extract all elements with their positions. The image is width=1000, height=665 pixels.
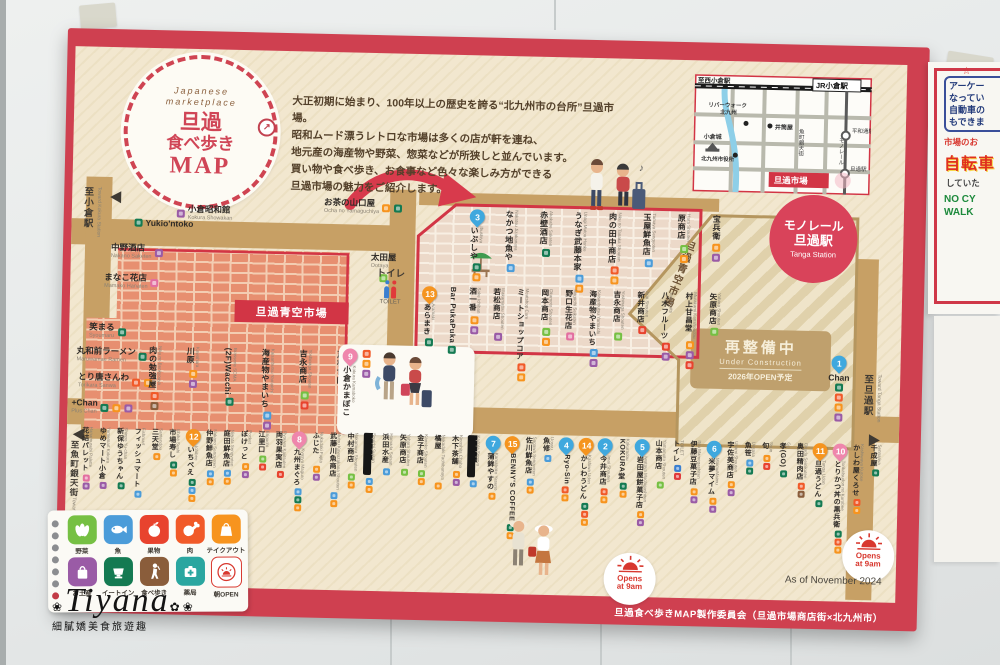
direction-kokura: 至小倉駅 Toward Kokura Station — [79, 186, 121, 237]
shop-item: 武藤川魚商店 Mutou Kawazakana Shouten — [327, 432, 342, 508]
opens-line2: at 9am — [617, 583, 643, 592]
fish-icon — [330, 492, 337, 499]
shop-romaji: Murakami Kanshoudou — [692, 292, 698, 338]
shop-icons — [580, 502, 589, 526]
fish-icon — [224, 470, 231, 477]
legend-label: テイクアウト — [206, 544, 245, 554]
shop-item: +Chan Plus Chan — [71, 398, 134, 417]
fruit-icon — [686, 361, 694, 369]
shop-item: 12 いちべえ Ichibee — [184, 429, 201, 502]
takeout-icon — [348, 482, 355, 489]
shop-item: 10 とりかつ丼の黒兵衛 Torikatsudon no Kurobee — [830, 443, 848, 554]
legend-icon — [175, 557, 204, 586]
meat-icon — [601, 488, 608, 495]
fruit-icon — [638, 326, 646, 334]
shop-icons — [446, 345, 456, 355]
shop-romaji: Usami Shouten — [733, 441, 739, 479]
mid-shop-row: 肉の勉強屋 Niku no Benkyouya 川原 Kawahara — [147, 346, 351, 432]
shop-item: 3 いぶしや Ibushiya — [468, 209, 485, 282]
shop-romaji: MaimuMaimu — [714, 458, 720, 496]
shop-icons — [300, 390, 310, 410]
shop-romaji: Hara Shouten — [686, 214, 692, 242]
shop-romaji: Souichi Suisan — [371, 433, 377, 475]
legend-item: テイクアウト — [210, 514, 242, 554]
takeout-icon — [691, 488, 698, 495]
shop-icons — [206, 470, 214, 486]
construction-open-date: 2026年OPEN予定 — [728, 371, 793, 383]
shop-romaji: Kaisanbutsu Yamaichi — [269, 349, 275, 409]
shop-romaji: Yagi Fruits — [668, 292, 674, 340]
shop-romaji: Nukadaki Fujita — [319, 432, 325, 463]
flower-icon — [566, 332, 574, 340]
shop-icons — [149, 390, 159, 410]
shop-romaji: Kokuradou — [625, 439, 631, 480]
legend-item: 野菜 — [66, 515, 98, 555]
shop-romaji: Yahara Shouten — [716, 293, 722, 325]
legend-icon — [103, 515, 132, 544]
shop-item: 9 小倉かまぼこ Kokura Kamaboko — [341, 348, 358, 430]
vegetable-icon — [656, 481, 663, 488]
shop-icons — [276, 470, 284, 478]
shop-icons — [488, 492, 496, 500]
meat-icon — [834, 539, 841, 546]
takeout-icon — [170, 469, 177, 476]
shop-romaji: Kokura Showakan — [188, 214, 233, 224]
legend-label: 魚 — [115, 545, 122, 555]
construction-title: 再整備中 — [725, 336, 797, 359]
shop-item: 金子商店 Kaneko Shouten — [415, 434, 429, 486]
takeout-icon — [113, 404, 121, 412]
shop-item: KOKURA堂 Kokuradou — [616, 439, 630, 499]
shop-romaji: Kokura Kamaboko — [351, 366, 357, 417]
meat-icon — [363, 350, 371, 358]
map-canvas: 旦過青空市場 旦過青空市場 再整備中 Under Construction 20… — [63, 46, 907, 603]
shop-icons — [506, 523, 514, 539]
takeout-icon — [153, 453, 160, 460]
shop-item: 8 九州まぐろ Kyusyu Maguro — [290, 431, 307, 512]
shop-icons — [469, 479, 477, 487]
shop-icons — [225, 397, 235, 407]
eatin-icon — [294, 496, 301, 503]
toilet-marker: トイレ TOILET — [376, 265, 405, 306]
toilet-label-jp: トイレ — [376, 265, 405, 280]
flower-icon — [83, 474, 90, 481]
numbered-pin: 2 — [595, 435, 616, 456]
fruit-icon — [301, 401, 309, 409]
souvenir-icon — [637, 519, 644, 526]
tape — [79, 2, 117, 29]
direction-kokura-label: 至小倉駅 — [79, 186, 94, 237]
souvenir-icon — [728, 489, 735, 496]
shop-item: 吉永商店 Yoshinaga Shouten — [611, 290, 626, 341]
shop-item: 岡本商店 Okamoto Shouten — [539, 289, 554, 348]
eatin-icon — [746, 467, 753, 474]
shop-icons — [661, 342, 671, 362]
station-line1: モノレール — [784, 218, 844, 233]
shop-item: 江里口 Eriguchi — [256, 430, 270, 471]
shop-romaji: Kadota Sengyo — [475, 435, 481, 477]
shop-icons — [241, 462, 249, 478]
meat-icon — [517, 363, 525, 371]
flower-icon — [151, 279, 159, 287]
takeout-icon — [313, 465, 320, 472]
shop-item: お茶の山口屋 Ocha no Yamaguchiya — [324, 198, 404, 218]
takeout-icon — [853, 507, 860, 514]
eatin-icon — [188, 478, 195, 485]
takeout-icon — [763, 455, 770, 462]
shop-item: 橘屋 Nukadaki Tachibanaya — [432, 434, 446, 489]
shop-romaji: Kinoshita Chaho — [458, 435, 464, 468]
shop-name: Chan — [828, 372, 849, 382]
takeout-icon — [418, 478, 425, 485]
shop-item: 野口生花店 Noguchi Seikaten — [563, 289, 578, 341]
legend-row-1: 野菜 魚 果物 肉 — [66, 514, 242, 555]
legend-icon — [67, 515, 96, 544]
eatin-icon — [117, 482, 124, 489]
shop-icons — [871, 469, 879, 477]
shop-icons — [815, 500, 823, 508]
legend-label: 果物 — [147, 545, 160, 555]
shop-romaji: Kashiwaya Kurose — [859, 444, 865, 497]
opens-line2: at 9am — [855, 560, 881, 569]
blank-paper — [934, 316, 1000, 562]
shop-romaji: Aramaki — [430, 303, 436, 335]
shop-romaji: Kawahara — [195, 347, 200, 367]
logo-eyebrow: marketplace — [166, 96, 237, 109]
shop-romaji: Plus Chan — [71, 407, 97, 417]
shop-romaji: TOILET — [679, 440, 685, 463]
shop-item: █████ Souichi Suisan — [362, 433, 376, 493]
eatin-icon — [835, 383, 843, 391]
shop-name: 川原 — [186, 347, 195, 367]
takeout-icon — [679, 255, 687, 263]
shop-item: フィッシュマート Fishmart — [132, 428, 147, 498]
fish-icon — [383, 468, 390, 475]
shop-icons — [152, 453, 160, 461]
direction-tanga: 至旦過駅 Toward Tanga Station — [859, 374, 888, 447]
shop-item: 中野酒店 Nakano Saketen — [111, 243, 164, 262]
wc-female-icon — [674, 473, 681, 480]
shop-icons — [561, 486, 569, 502]
takeout-icon — [507, 532, 514, 539]
shop-romaji: Yahara Shouten — [406, 434, 412, 466]
shop-romaji: Tamaya Sengyoten — [651, 213, 657, 256]
shop-icons — [708, 497, 716, 513]
shop-icons — [690, 487, 698, 503]
eatin-icon — [101, 404, 109, 412]
shop-item: 中村商店 Nakamura Shouten — [345, 432, 359, 489]
shop-icons — [833, 530, 842, 554]
shop-romaji: Niku no Benkyouya — [157, 346, 163, 389]
shop-romaji: Yoshinaga Shouten — [307, 350, 313, 389]
takeout-icon — [686, 341, 694, 349]
watermark-caption: 細膩嬌美食旅遊趣 — [52, 618, 196, 633]
numbered-pin: 5 — [632, 436, 653, 457]
meat-icon — [581, 510, 588, 517]
tabearuki-icon — [150, 401, 158, 409]
fish-icon — [590, 349, 598, 357]
shop-icons — [259, 455, 267, 471]
souvenir-icon — [686, 351, 694, 359]
shop-item: (2F)Wacchi Brasserie SOMA — [223, 348, 238, 408]
shop-icons — [224, 469, 232, 485]
shop-icons — [506, 263, 516, 273]
souvenir-icon — [313, 473, 320, 480]
shop-romaji: Fishmart — [140, 428, 146, 488]
takeout-icon — [712, 243, 720, 251]
souvenir-icon — [263, 421, 271, 429]
shop-icons — [745, 459, 753, 475]
shop-icons — [294, 488, 303, 512]
vegetable-icon — [542, 328, 550, 336]
shop-romaji: Ichiba Sushi — [175, 429, 181, 459]
shop-item: 13 あらまき Aramaki — [421, 286, 437, 347]
shop-romaji: Wakamatsu Shouten — [500, 288, 506, 330]
souvenir-icon — [589, 359, 597, 367]
meat-icon — [834, 393, 842, 401]
shop-icons — [347, 473, 355, 489]
shop-romaji: Imai Shouten — [606, 455, 612, 485]
eatin-icon — [118, 328, 126, 336]
shop-romaji: Pocket — [247, 430, 253, 460]
eatin-icon — [447, 346, 455, 354]
numbered-pin: 3 — [467, 206, 488, 227]
shop-icons — [637, 325, 647, 335]
shop-item: 川原 Kawahara — [185, 347, 200, 390]
numbered-pin: 1 — [829, 352, 850, 373]
legend-item: 果物 — [138, 515, 170, 555]
shop-romaji: Syun — [769, 442, 774, 452]
shop-item: ミートショップコア Meatshop Core — [514, 288, 530, 382]
shop-icons — [711, 242, 721, 262]
map-logo: Japanese marketplace 旦過 食べ歩き MAP ↗ — [122, 53, 279, 210]
shop-romaji: Arai Shouten — [644, 291, 650, 323]
takeout-icon — [581, 518, 588, 525]
numbered-pin: 6 — [703, 438, 724, 459]
legend-item: 肉 — [174, 515, 206, 555]
shop-icons — [330, 492, 338, 508]
takeout-icon — [542, 338, 550, 346]
shop-item: 赤壁酒店 Akakabe Saketen — [539, 211, 554, 259]
fish-icon — [365, 477, 372, 484]
shop-romaji: Torikara Sanwa — [78, 381, 129, 391]
sunrise-icon — [853, 530, 883, 553]
watermark: ❀Tiyana✿❀ 細膩嬌美食旅遊趣 — [52, 584, 196, 633]
takeout-icon — [382, 204, 390, 212]
shop-romaji: Maruwamae Ramen — [76, 355, 135, 365]
shop-icons — [853, 498, 861, 514]
shop-romaji: Sake Ichiban — [476, 287, 482, 313]
minimap-tanga-market: 旦過市場 — [774, 175, 809, 186]
area-minimap: 至西小倉駅 JR小倉駅 モノレール 平和通駅 旦過駅 リバーウォーク 北九州 井… — [692, 74, 872, 195]
fish-icon — [263, 411, 271, 419]
takeout-icon — [637, 511, 644, 518]
shop-name: BENNY'S COFFEE — [507, 453, 517, 521]
map-poster: 旦過青空市場 旦過青空市場 再整備中 Under Construction 20… — [55, 28, 930, 631]
shop-icons — [187, 478, 196, 502]
shop-icons — [365, 477, 373, 493]
shop-item: 6 米夢マイム MaimuMaimu — [705, 441, 722, 514]
shop-item: 海産物やまいち Kaisanbutsu Yamaichi — [260, 348, 276, 430]
shop-icons — [644, 258, 654, 268]
numbered-pin: 13 — [419, 283, 440, 304]
takeout-icon — [472, 273, 480, 281]
shop-romaji: Ryouwa Kajitsuten — [282, 431, 288, 469]
legend-label: 野菜 — [75, 545, 88, 555]
shop-icons — [613, 331, 623, 341]
numbered-pin: 9 — [340, 345, 361, 366]
shop-romaji: Go — [786, 442, 792, 467]
shop-item: 三天堂 Santendou — [150, 428, 164, 461]
shop-romaji: Kamaboko Yasuno — [493, 453, 499, 491]
shop-romaji: Unagi Mutou Honke — [582, 212, 588, 272]
meat-icon — [853, 499, 860, 506]
vegetable-icon — [301, 391, 309, 399]
flower-flourish-icon: ✿❀ — [170, 600, 196, 614]
shop-item: 海産物やまいち Kaisanbutsu Yamaichi — [587, 290, 602, 368]
eatin-icon — [424, 338, 432, 346]
shop-romaji: Yoshinaga Shouten — [620, 291, 626, 330]
shop-icons — [313, 465, 321, 481]
shop-romaji: Itou Mamegashiten — [696, 440, 702, 485]
fish-icon — [526, 478, 533, 485]
meat-icon — [132, 379, 140, 387]
takeout-icon — [709, 498, 716, 505]
shop-romaji: Santendou — [158, 428, 164, 451]
takeout-icon — [470, 316, 478, 324]
takeout-icon — [834, 403, 842, 411]
takeout-icon — [834, 547, 841, 554]
shop-item: 木下茶舗 Kinoshita Chaho — [450, 435, 464, 486]
numbered-pin: 15 — [502, 433, 523, 454]
fruit-icon — [662, 343, 670, 351]
eatin-icon — [619, 482, 626, 489]
station-line2: 旦過駅 — [794, 233, 833, 249]
shop-romaji: Noguchi Seikaten — [572, 290, 578, 330]
shop-icons — [526, 478, 534, 494]
side-notice-poster: ☆ アーケー なってい 自動車の もできま 市場のお 自転車 していた NO C… — [928, 62, 1000, 314]
fish-icon — [135, 490, 142, 497]
shop-item: 旬 Syun — [760, 442, 774, 471]
shop-romaji: Sennariya — [877, 444, 883, 467]
shop-item: 両羽果実店 Ryouwa Kajitsuten — [273, 431, 287, 479]
shop-item: 15 BENNY'S COFFEE — [503, 436, 520, 539]
numbered-pin: 14 — [575, 435, 596, 456]
shop-romaji: Iwataya Mochigashiten — [642, 456, 648, 509]
shop-icons — [541, 327, 551, 347]
shop-romaji: Syoumaru — [89, 332, 115, 342]
logo-title-3: MAP — [169, 153, 230, 178]
shop-romaji: Uosasa — [751, 442, 756, 457]
numbered-pin: 12 — [182, 426, 203, 447]
spiral-binding — [52, 520, 59, 527]
shop-romaji: Niku no Tanaka Shouten — [616, 213, 622, 264]
vegetable-icon — [680, 245, 688, 253]
shop-item: 八木フルーツ Yagi Fruits — [659, 292, 674, 362]
souvenir-icon — [834, 413, 842, 421]
shop-item: 小倉昭和館 Kokura Showakan — [176, 204, 233, 223]
shop-item: 新保ゆうちゃん Shinpo Yu-chan — [114, 427, 128, 490]
numbered-pin: 4 — [556, 434, 577, 455]
construction-subtitle: Under Construction — [719, 357, 802, 371]
fish-icon — [470, 480, 477, 487]
souvenir-icon — [242, 471, 249, 478]
takeout-icon — [610, 276, 618, 284]
shop-item: 浜田水産 Hamada Suisan — [380, 433, 394, 475]
legend-item: 朝OPEN — [210, 556, 242, 598]
shop-icons — [709, 327, 719, 337]
shop-romaji: Uosyu — [549, 437, 554, 452]
fish-icon — [188, 486, 195, 493]
fruit-icon — [276, 471, 283, 478]
wc-male-icon — [674, 465, 681, 472]
souvenir-icon — [362, 370, 370, 378]
shop-item: まなこ花店 Mamako Hanaten — [104, 273, 160, 292]
vegetable-icon — [259, 455, 266, 462]
eatin-icon — [834, 531, 841, 538]
shop-icons — [262, 410, 272, 430]
shop-icons — [469, 315, 479, 335]
shop-icons — [636, 511, 644, 527]
legend-icon — [139, 515, 168, 544]
shop-romaji: Tanga Udon — [821, 460, 827, 498]
souvenir-icon — [177, 210, 185, 218]
shop-icons — [541, 248, 551, 258]
eatin-icon — [226, 398, 234, 406]
shop-icons — [423, 337, 433, 347]
shop-item: トイレ TOILET — [671, 440, 685, 481]
shop-icons — [82, 473, 90, 489]
vegetable-icon — [348, 474, 355, 481]
shop-icons — [400, 468, 408, 476]
souvenir-icon — [188, 380, 196, 388]
eatin-icon — [394, 204, 402, 212]
legend-label: 朝OPEN — [214, 588, 239, 598]
eatin-icon — [581, 502, 588, 509]
shop-icons — [169, 460, 177, 476]
souvenir-icon — [125, 404, 133, 412]
fish-icon — [207, 470, 214, 477]
shop-icons — [516, 362, 526, 382]
meat-icon — [610, 266, 618, 274]
photo-edge — [0, 0, 6, 665]
shop-icons — [797, 482, 805, 498]
shop-item: 宝兵衛 — [711, 215, 722, 263]
shop-item: █████ Kadota Sengyo — [467, 435, 481, 487]
meat-icon — [562, 487, 569, 494]
meat-icon — [798, 483, 805, 490]
shop-item: ぽけっと Pocket — [239, 430, 253, 478]
takeout-icon — [189, 370, 197, 378]
shop-romaji: Ibushiya — [478, 226, 484, 260]
shop-icons — [99, 481, 107, 489]
shop-romaji: Nakatsu Jizakanaya — [513, 210, 519, 261]
shop-item: 7 蒲鉾やすの Kamaboko Yasuno — [484, 436, 500, 501]
shop-icons — [452, 470, 460, 486]
shop-item: 1 Chan — [827, 355, 850, 422]
numbered-pin: 7 — [482, 433, 503, 454]
market-row-2: 13 あらまき Aramaki Bar PukaPuka — [420, 286, 722, 387]
shop-item: 酒一番 Sake Ichiban — [467, 287, 482, 335]
shop-romaji: Ichibee — [193, 446, 199, 476]
takeout-icon — [619, 490, 626, 497]
market-row-1: 3 いぶしや Ibushiya なかつ地魚や Nakatsu Jizakanay… — [468, 209, 722, 296]
shop-item: 伊藤豆菓子店 Itou Mamegashiten — [688, 440, 702, 503]
fish-icon — [507, 264, 515, 272]
restroom-icon — [384, 280, 396, 298]
shop-icons — [417, 469, 425, 485]
shop-icons — [493, 331, 503, 341]
